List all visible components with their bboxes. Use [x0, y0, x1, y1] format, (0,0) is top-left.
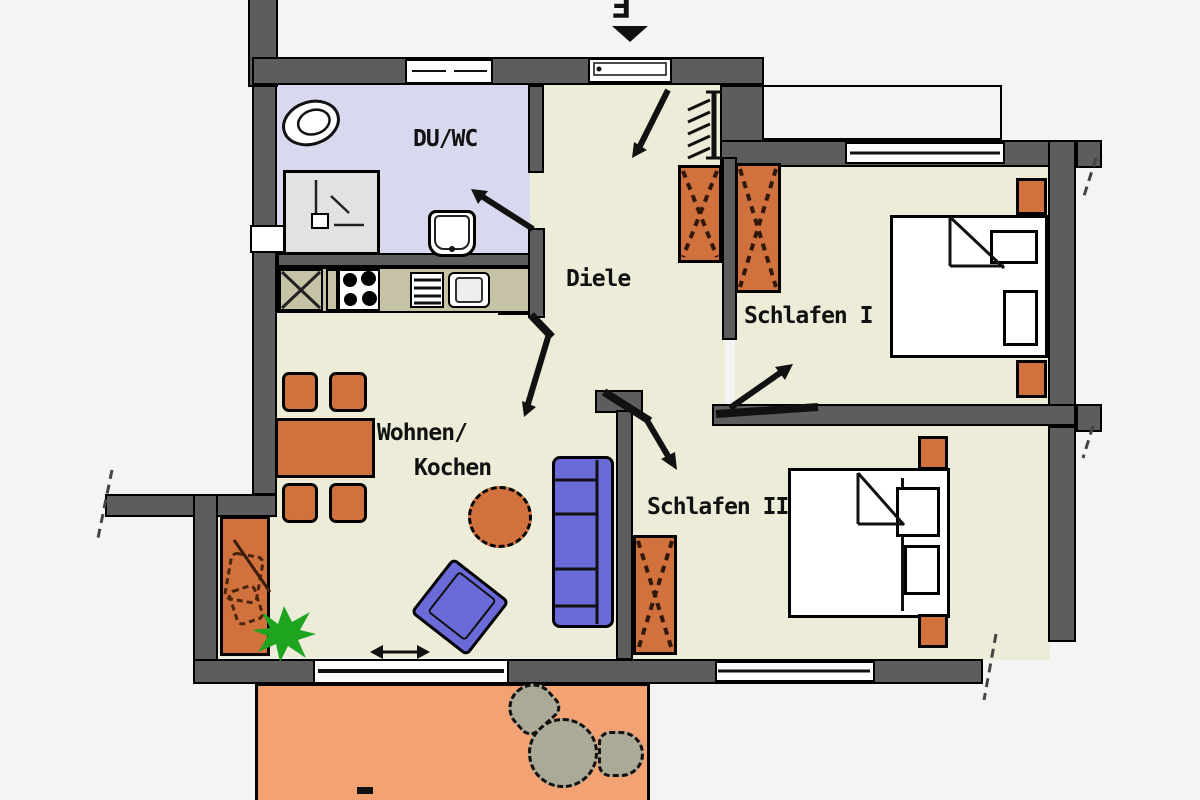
wall-stub-topright — [1076, 140, 1102, 168]
wall-between-bedrooms — [712, 404, 1076, 426]
wall-stub-bottomright — [1076, 404, 1102, 432]
nightstand — [918, 614, 948, 648]
wall-left-lower — [193, 494, 218, 684]
wardrobe-bedroom2 — [633, 535, 677, 655]
room-label-living1: Wohnen/ — [377, 420, 467, 446]
dining-chair — [329, 483, 367, 523]
room-label-hallway: Diele — [566, 266, 630, 292]
wall-bedroom2-right — [1048, 426, 1076, 642]
pillow — [896, 487, 940, 537]
dishwasher — [410, 272, 444, 308]
pillow — [904, 545, 940, 595]
wall-bath-right-bottom — [528, 228, 545, 318]
pillow — [990, 230, 1038, 264]
wardrobe-bedroom1 — [735, 163, 781, 293]
kitchen-divider — [326, 269, 338, 311]
stove-burner — [362, 291, 377, 306]
room-label-bedroom1: Schlafen I — [744, 303, 872, 329]
wall-central-vertical — [616, 410, 633, 660]
nightstand — [1016, 360, 1047, 398]
nightstand — [918, 436, 948, 470]
entrance-letter: E — [612, 0, 631, 24]
kitchen-sink-basin — [455, 277, 483, 303]
wall-left-stub — [105, 494, 277, 517]
entrance-door-opening — [588, 58, 672, 83]
dining-chair — [329, 372, 367, 412]
room-label-bedroom2: Schlafen II — [647, 494, 788, 520]
garden-chair — [598, 731, 644, 777]
wall-bath-right-top — [528, 85, 544, 173]
wall-bath-bottom — [277, 253, 532, 267]
kitchen-tall-cabinet — [279, 269, 323, 311]
wall-bedroom1-right — [1048, 140, 1076, 432]
washbasin-inner — [434, 215, 470, 250]
dining-chair — [282, 372, 318, 412]
sofa — [552, 456, 614, 628]
window-bedroom2 — [715, 661, 875, 682]
terrace-label-partial — [357, 787, 373, 794]
stove-burner — [344, 293, 357, 306]
shower — [283, 170, 380, 255]
wardrobe-hallway — [678, 165, 722, 263]
floor-plan: E DU/WC Diele Schlafen I Wohnen/ Kochen … — [0, 0, 1200, 800]
entrance-arrow-triangle — [612, 26, 648, 42]
wall-left-upper — [252, 85, 277, 495]
stove-burner — [343, 273, 357, 287]
sideboard — [220, 516, 270, 656]
window-bathroom — [405, 59, 493, 84]
window-bedroom1 — [845, 142, 1005, 164]
room-label-bathroom: DU/WC — [413, 126, 477, 152]
nightstand — [1016, 178, 1047, 215]
dining-chair — [282, 483, 318, 523]
room-label-living2: Kochen — [414, 455, 491, 481]
balcony-door — [313, 659, 509, 684]
coffee-table — [468, 486, 532, 548]
wall-top — [252, 57, 764, 85]
pillow — [1003, 290, 1038, 346]
dining-table — [275, 418, 375, 478]
exterior-niche — [762, 85, 1002, 140]
shower-drain-box — [311, 213, 329, 229]
stove-burner — [361, 271, 376, 286]
